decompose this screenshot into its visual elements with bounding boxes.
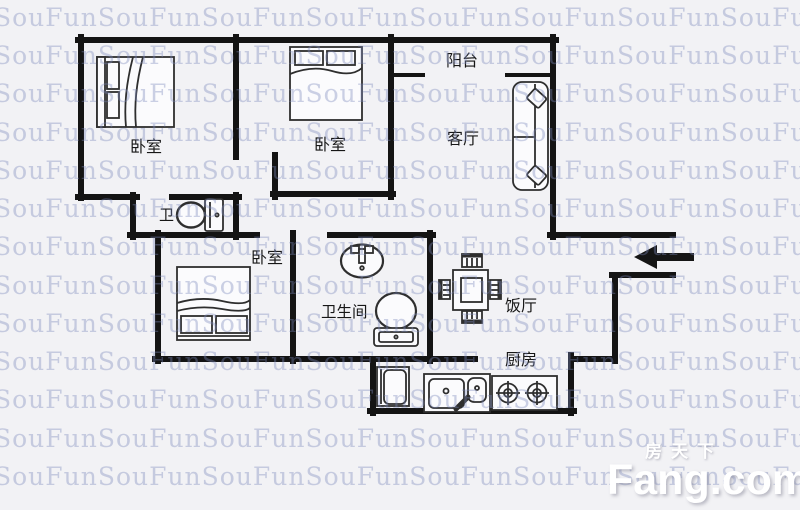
room-label-dining-room: 饭厅 [505, 296, 537, 315]
room-label-bathroom: 卫生间 [321, 303, 368, 321]
room-label-bedroom-1: 卧室 [130, 137, 162, 156]
bed-icon [97, 57, 174, 127]
room-label-living-room: 客厅 [447, 129, 479, 148]
bed-icon [290, 47, 362, 120]
toilet-icon [374, 293, 418, 346]
kitchen-sink-icon [424, 374, 490, 412]
room-label-bedroom-3: 卧室 [251, 248, 283, 267]
room-label-toilet: 卫 [159, 206, 174, 224]
room-label-bedroom-2: 卧室 [314, 135, 346, 154]
floorplan-image: 卧室 卧室 卧室 阳台 客厅 卫 卫生间 饭厅 厨房 SouFunSouFunS… [0, 0, 800, 510]
bed-icon [177, 267, 250, 340]
sink-icon [341, 245, 383, 278]
room-label-kitchen: 厨房 [505, 350, 537, 369]
room-label-balcony: 阳台 [446, 51, 478, 70]
stove-icon [492, 376, 557, 410]
entrance-arrow-icon [634, 245, 694, 269]
sofa-icon [513, 82, 548, 190]
fridge-icon [377, 367, 409, 406]
dining-table-icon [439, 254, 501, 323]
toilet-icon [177, 199, 223, 231]
floorplan-drawing: 卧室 卧室 卧室 阳台 客厅 卫 卫生间 饭厅 厨房 [0, 0, 800, 510]
